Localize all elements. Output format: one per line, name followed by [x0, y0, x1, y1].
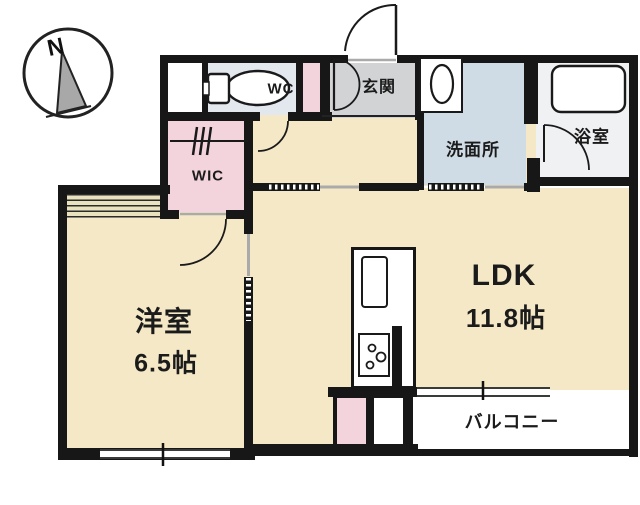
room-wic	[168, 116, 247, 212]
wall	[244, 277, 253, 322]
wall	[392, 326, 402, 390]
wall	[160, 210, 179, 219]
wall	[58, 185, 170, 194]
wall	[428, 183, 484, 191]
washroom-label: 洗面所	[446, 142, 500, 159]
wall	[629, 55, 638, 457]
closet-shelf-stripes	[66, 194, 168, 218]
wall	[296, 58, 303, 116]
entry-door-swing-icon	[345, 5, 396, 60]
wall	[403, 387, 413, 456]
wall	[524, 183, 540, 191]
ldk-label: LDK	[472, 261, 537, 291]
floorplan: N	[0, 0, 640, 505]
wc-label: WC	[268, 82, 295, 97]
ldk-size-label: 11.8帖	[466, 305, 546, 331]
entrance-label: 玄関	[362, 80, 396, 96]
wall	[244, 210, 253, 234]
wall	[244, 112, 253, 219]
room-storage-strip	[166, 60, 204, 115]
window-western-room	[100, 449, 230, 459]
balcony-label: バルコニー	[465, 413, 560, 431]
entry-door-opening	[348, 55, 397, 63]
western-room-size-label: 6.5帖	[134, 352, 198, 377]
wall	[320, 58, 330, 116]
wall	[250, 444, 418, 456]
room-washroom	[422, 60, 526, 185]
wall	[537, 177, 638, 186]
room-bathroom	[536, 60, 631, 179]
kitchen-counter	[351, 247, 416, 389]
compass-label: N	[45, 32, 67, 61]
wall	[288, 112, 332, 121]
wall	[397, 55, 637, 63]
wall	[244, 322, 253, 448]
wic-label: WIC	[192, 169, 224, 184]
compass-north-icon: N	[24, 29, 112, 117]
western-room-label: 洋室	[135, 308, 193, 336]
wall	[359, 183, 419, 191]
bathroom-label: 浴室	[574, 129, 610, 146]
wall	[202, 58, 208, 115]
wall	[58, 185, 67, 460]
window-ldk-balcony	[417, 387, 550, 397]
wall	[244, 183, 268, 191]
wall	[417, 58, 424, 190]
wall	[524, 58, 538, 124]
wall	[403, 449, 638, 456]
wall	[268, 183, 320, 191]
